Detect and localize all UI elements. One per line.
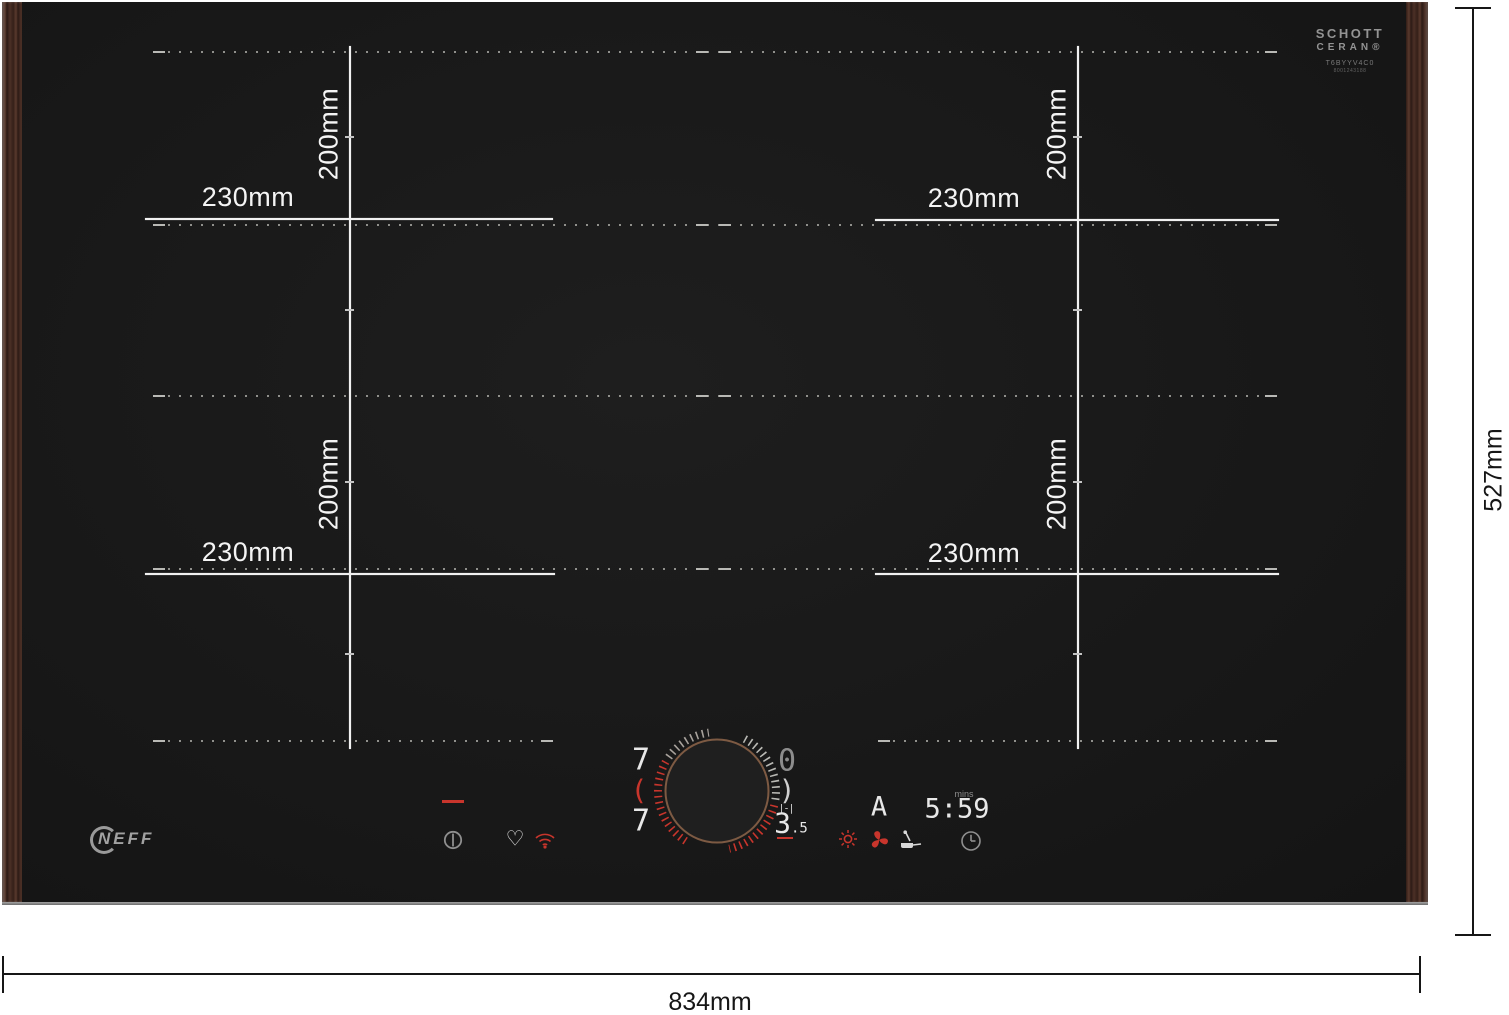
- hob-glass-surface: 230mm 230mm 230mm 230mm 200mm 200mm 200m…: [2, 2, 1428, 902]
- overall-depth-dimension-line: [1472, 8, 1474, 935]
- timer-display: 5:59: [924, 794, 989, 825]
- depth-line-tick: [1073, 653, 1082, 655]
- zone-width-label: 230mm: [904, 538, 1044, 569]
- dotted-line-dash: [1265, 224, 1277, 226]
- dotted-line-dash: [153, 224, 165, 226]
- depth-line-tick: [1073, 136, 1082, 138]
- zone-depth-label: 200mm: [314, 59, 345, 209]
- fan-icon[interactable]: [866, 827, 892, 853]
- overall-width-dimension-line: [3, 973, 1420, 975]
- zone-boundary-dotted-line: [168, 51, 1263, 53]
- sun-icon[interactable]: [836, 827, 860, 851]
- zone-boundary-dotted-line: [168, 395, 1263, 397]
- zone-center-dotted-line: [168, 224, 1263, 226]
- dimension-end-tick: [1455, 934, 1491, 936]
- clock-icon[interactable]: [959, 829, 983, 853]
- dotted-line-dash: [696, 51, 708, 53]
- depth-line-tick: [345, 481, 354, 483]
- neff-logo: NEFF: [90, 824, 180, 856]
- overall-width-label: 834mm: [640, 988, 780, 1015]
- zone-depth-line-right: [1077, 46, 1079, 749]
- dotted-line-dash: [541, 740, 553, 742]
- dotted-line-dash: [696, 224, 708, 226]
- knob-disc[interactable]: [666, 740, 769, 843]
- dotted-line-dash: [719, 51, 731, 53]
- depth-line-tick: [345, 653, 354, 655]
- dotted-line-dash: [153, 740, 165, 742]
- dotted-line-dash: [878, 740, 890, 742]
- auto-indicator-display: A: [871, 792, 887, 823]
- dotted-line-dash: [153, 395, 165, 397]
- red-dash: [442, 800, 464, 803]
- dotted-line-dash: [719, 568, 731, 570]
- zone-width-label: 230mm: [178, 537, 318, 568]
- dimension-end-tick: [2, 956, 4, 993]
- dotted-line-dash: [153, 568, 165, 570]
- depth-line-tick: [345, 309, 354, 311]
- wood-trim-left: [2, 2, 22, 902]
- dotted-line-dash: [1265, 395, 1277, 397]
- overall-depth-label: 527mm: [1480, 400, 1509, 540]
- depth-line-tick: [345, 136, 354, 138]
- power-level-suffix: .5: [791, 821, 808, 837]
- pan-thermometer-icon[interactable]: [897, 829, 925, 853]
- dotted-line-dash: [1265, 568, 1277, 570]
- zone-width-label: 230mm: [904, 183, 1044, 214]
- depth-line-tick: [1073, 481, 1082, 483]
- twistpad-knob[interactable]: [647, 721, 787, 861]
- dotted-line-dash: [696, 395, 708, 397]
- zone-width-label: 230mm: [178, 182, 318, 213]
- hob-dimension-diagram: 230mm 230mm 230mm 230mm 200mm 200mm 200m…: [0, 0, 1509, 1015]
- dotted-line-dash: [719, 395, 731, 397]
- zone-center-dotted-line: [168, 568, 1263, 570]
- dotted-line-dash: [1265, 51, 1277, 53]
- zone-depth-line-left: [349, 46, 351, 749]
- power-level-main: 3: [774, 807, 791, 840]
- ceran-logo-text: CERAN®: [1290, 42, 1410, 53]
- depth-line-tick: [1073, 309, 1082, 311]
- zone-boundary-dotted-line: [168, 740, 535, 742]
- schott-logo-text: SCHOTT: [1290, 26, 1410, 41]
- zone-depth-label: 200mm: [1042, 59, 1073, 209]
- dotted-line-dash: [153, 51, 165, 53]
- heart-icon[interactable]: ♡: [506, 829, 525, 850]
- dotted-line-dash: [719, 224, 731, 226]
- model-code: 8001243188: [1290, 68, 1410, 74]
- dimension-end-tick: [1455, 7, 1491, 9]
- dotted-line-dash: [696, 568, 708, 570]
- wifi-icon[interactable]: [533, 830, 557, 850]
- power-icon[interactable]: [442, 829, 464, 851]
- schott-ceran-marking: SCHOTT CERAN® T6BYYV4C0 8001243188: [1290, 26, 1410, 74]
- neff-logo-text: NEFF: [98, 829, 154, 849]
- zone-depth-label: 200mm: [1042, 409, 1073, 559]
- model-number: T6BYYV4C0: [1290, 60, 1410, 67]
- zone-depth-label: 200mm: [314, 409, 345, 559]
- power-level-underline: [777, 837, 793, 839]
- left-zones-link-bracket: (: [631, 774, 648, 807]
- wood-trim-right: [1406, 2, 1428, 902]
- power-level-display: 3.5: [774, 807, 808, 840]
- dimension-end-tick: [1419, 956, 1421, 993]
- dotted-line-dash: [1265, 740, 1277, 742]
- right-zones-link-bracket: ): [779, 774, 796, 807]
